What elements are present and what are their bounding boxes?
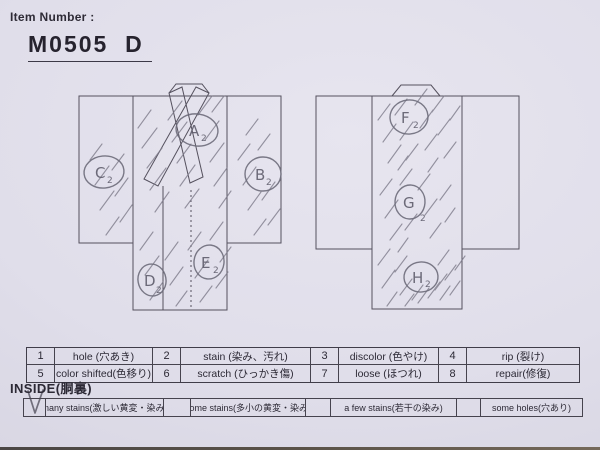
inspection-sheet: Item Number : M0505 D	[0, 0, 600, 450]
hatch-marks-front	[90, 96, 280, 306]
legend-label-rip: rip (裂け)	[467, 348, 579, 365]
legend-label-stain: stain (染み、汚れ)	[181, 348, 311, 365]
legend-num-3: 3	[311, 348, 339, 365]
marker-letter: E	[201, 254, 210, 272]
legend-label-loose: loose (ほつれ)	[339, 365, 439, 382]
checkbox-some-holes	[457, 399, 481, 416]
marker-letter: G	[403, 194, 415, 212]
marker-sub: 2	[425, 280, 431, 290]
marker-letter: D	[144, 272, 156, 290]
marker-sub: 2	[413, 121, 419, 131]
legend-label-hole: hole (穴あき)	[55, 348, 153, 365]
checkbox-some-stains	[164, 399, 191, 416]
legend-num-1: 1	[27, 348, 55, 365]
option-label-some-stains: some stains(多小の黄変・染み)	[191, 399, 306, 416]
inside-options-row: many stains(激しい黄変・染み) some stains(多小の黄変・…	[23, 398, 583, 417]
legend-num-4: 4	[439, 348, 467, 365]
kimono-back-collar	[392, 85, 440, 96]
marker-sub: 2	[201, 134, 207, 144]
legend-label-scratch: scratch (ひっかき傷)	[181, 365, 311, 382]
option-label-some-holes: some holes(穴あり)	[481, 399, 582, 416]
legend-label-discolor: discolor (色やけ)	[339, 348, 439, 365]
legend-table: 1 hole (穴あき) 2 stain (染み、汚れ) 3 discolor …	[26, 347, 580, 383]
marker-letter: B	[255, 166, 265, 184]
marker-sub: 2	[266, 178, 272, 188]
option-label-a-few-stains: a few stains(若干の染み)	[331, 399, 457, 416]
marker-sub: 2	[156, 286, 162, 296]
marker-sub: 2	[420, 214, 426, 224]
legend-num-8: 8	[439, 365, 467, 382]
legend-num-7: 7	[311, 365, 339, 382]
marker-sub: 2	[213, 266, 219, 276]
checkbox-many-stains	[24, 399, 46, 416]
defect-marker-C2: C 2	[82, 154, 125, 190]
legend-num-6: 6	[153, 365, 181, 382]
legend-num-2: 2	[153, 348, 181, 365]
marker-letter: C	[95, 164, 105, 182]
marker-sub: 2	[107, 176, 113, 186]
inside-section-title: INSIDE(胴裏)	[10, 378, 92, 397]
marker-letter: F	[401, 109, 410, 127]
defect-marker-G2: G 2	[394, 184, 426, 224]
marker-letter: H	[412, 269, 423, 287]
defect-marker-D2: D 2	[135, 262, 168, 298]
marker-letter: A	[189, 122, 200, 140]
option-label-many-stains: many stains(激しい黄変・染み)	[46, 399, 164, 416]
defect-marker-F2: F 2	[389, 98, 430, 135]
checkbox-a-few-stains	[306, 399, 331, 416]
legend-label-repair: repair(修復)	[467, 365, 579, 382]
